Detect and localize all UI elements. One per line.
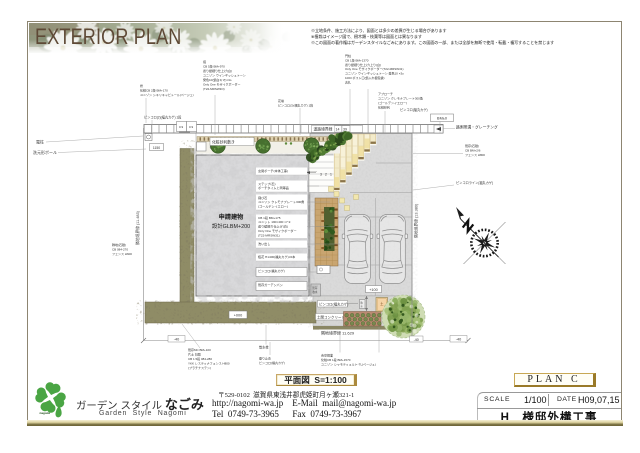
svg-text:申請建物: 申請建物 [219,213,245,221]
svg-text:隣地境界線 (13.380): 隣地境界線 (13.380) [414,203,419,238]
svg-text:(T22-MRSW31): (T22-MRSW31) [258,233,280,237]
svg-text:ピンコロライン(福丸カゲ): ピンコロライン(福丸カゲ) [456,180,493,185]
svg-text:0.9: 0.9 [189,125,194,129]
svg-text:CB 1段 BM+1370: CB 1段 BM+1370 [345,57,369,62]
svg-text:ユニソン クレモナプレート300角: ユニソン クレモナプレート300角 [258,199,304,204]
svg-text:隣地境界線 11.629: 隣地境界線 11.629 [321,330,355,336]
svg-text:(T22-MRSW3O): (T22-MRSW3O) [203,87,225,91]
svg-text:CB BM+2/6: CB BM+2/6 [465,148,481,152]
svg-text:化粧CB 1段 BM+1570: 化粧CB 1段 BM+1570 [321,357,351,362]
svg-text:門柱: 門柱 [345,53,351,58]
svg-text:0.9: 0.9 [179,125,184,129]
svg-text:ユニゾン シキリキャピトール(ベージュ): ユニゾン シキリキャピトール(ベージュ) [140,92,194,97]
svg-text:39: 39 [343,128,347,132]
svg-text:遮り壁細り仕上げ(上り(白): 遮り壁細り仕上げ(上り(白) [345,62,381,67]
svg-text:遮り壁細り仕上げ(白): 遮り壁細り仕上げ(白) [203,68,232,73]
svg-text:化粧CB 2段 BM+170: 化粧CB 2段 BM+170 [140,87,168,92]
svg-text:ユニット 190×400 ×7.9: ユニット 190×400 ×7.9 [258,220,291,224]
svg-text:道路境界線: 道路境界線 [314,127,333,132]
svg-text:ユニゾン ウインギッシュトーン 発色10 ×3o: ユニゾン ウインギッシュトーン 発色10 ×3o [345,71,404,76]
svg-text:堀: 堀 [203,59,206,64]
svg-text:散水栓: 散水栓 [259,345,269,350]
svg-text:散水: 散水 [312,290,318,294]
svg-text:CB 1.5段 084-280: CB 1.5段 084-280 [188,356,212,361]
svg-text:化粧砂利: 化粧砂利 [378,105,390,110]
svg-text:+000: +000 [234,314,243,318]
svg-text:1003 ポスト口(鏡入れ梱包袋): 1003 ポスト口(鏡入れ梱包袋) [345,75,385,80]
svg-text:-40: -40 [456,338,462,342]
svg-text:Only One モザイクボーダー(T22-MRSW31): Only One モザイクボーダー(T22-MRSW31) [345,66,403,71]
svg-text:既存ガーデンパン: 既存ガーデンパン [258,282,283,287]
svg-text:枡: 枡 [140,83,143,88]
svg-text:-40: -40 [414,338,419,342]
svg-text:BM±0: BM±0 [437,117,447,121]
svg-text:3: 3 [320,173,322,177]
svg-text:発色10(鏡白キマ)×3o: 発色10(鏡白キマ)×3o [203,77,232,82]
svg-text:乗り止め: 乗り止め [259,356,271,361]
svg-text:花壇: 花壇 [278,98,284,103]
svg-text:1150: 1150 [153,146,160,150]
svg-text:(ゴールデンイエロー): (ゴールデンイエロー) [378,100,407,105]
svg-text:(ゴールデンイエロー): (ゴールデンイエロー) [258,204,288,209]
svg-text:ピンコロ(福丸カゲ): ピンコロ(福丸カゲ) [319,302,348,307]
svg-text:片土 割取: 片土 割取 [188,352,201,357]
svg-text:ピンコロ(2)(福丸カゲ) 1段: ピンコロ(2)(福丸カゲ) 1段 [144,115,182,120]
svg-text:14: 14 [336,128,340,132]
svg-text:化粧砂利敷き: 化粧砂利敷き [212,140,235,145]
svg-text:青空掘業: 青空掘業 [321,353,333,358]
svg-text:ユニゾン シャモティェルト-TL(ベージュ): ユニゾン シャモティェルト-TL(ベージュ) [321,362,376,367]
svg-text:(プラチナステン): (プラチナステン) [188,365,211,370]
svg-text:飛び石: 飛び石 [258,195,267,200]
svg-text:+100: +100 [369,288,378,292]
svg-text:ピンコロ(福丸カゲ): ピンコロ(福丸カゲ) [400,107,428,112]
svg-text:ステップ(石): ステップ(石) [258,181,276,186]
svg-text:ピンコロ(福丸カゲ): ピンコロ(福丸カゲ) [258,268,285,273]
svg-text:ピンコロ(3)(福丸カゲ) 1段: ピンコロ(3)(福丸カゲ) 1段 [278,103,313,108]
svg-text:YKK レスティナフェンス H800: YKK レスティナフェンス H800 [188,361,230,366]
svg-text:nagomi: nagomi [40,411,51,415]
svg-text:設計GLBM+200: 設計GLBM+200 [212,222,250,230]
svg-text:CB 1段 BM+175: CB 1段 BM+175 [258,215,281,220]
svg-text:アプローチ: アプローチ [378,91,393,96]
svg-text:洗い出し: 洗い出し [258,241,270,246]
svg-text:洗元形ポール: 洗元形ポール [33,149,57,155]
svg-text:電柱: 電柱 [36,139,44,145]
svg-text:既存(石積): 既存(石積) [465,143,479,148]
svg-text:既存: 既存 [312,286,318,290]
svg-text:表札: 表札 [345,79,351,84]
svg-text:玄関ポーチ(本体工事): 玄関ポーチ(本体工事) [258,168,288,173]
svg-text:隣地境界線 (11.483): 隣地境界線 (11.483) [135,210,140,245]
svg-text:CB 084-270: CB 084-270 [112,248,128,252]
svg-text:CB 5段 BM+970: CB 5段 BM+970 [203,64,225,69]
svg-text:ユニゾン ウインギッシュトーン: ユニゾン ウインギッシュトーン [203,73,246,78]
svg-text:フェンス H600: フェンス H600 [112,251,132,256]
svg-text:Only One モザイクボーダー: Only One モザイクボーダー [203,82,240,87]
svg-text:2: 2 [325,173,327,177]
svg-text:隣地(石積): 隣地(石積) [112,242,126,247]
svg-text:土間コンクリート: 土間コンクリート [317,315,345,320]
svg-text:路側帯溝・グレーチング: 路側帯溝・グレーチング [456,125,498,130]
svg-text:ポーチタイムと同等品: ポーチタイムと同等品 [258,185,289,190]
svg-text:Only One モザイクボーダー: Only One モザイクボーダー [258,228,297,233]
svg-text:遮り壁細り仕上げ(白): 遮り壁細り仕上げ(白) [258,224,288,229]
svg-text:フェンス H800: フェンス H800 [465,152,485,157]
svg-text:ユニゾン クレモナプレート300角: ユニゾン クレモナプレート300角 [378,96,423,101]
svg-text:-40: -40 [174,338,180,342]
svg-text:既存MC BM+100: 既存MC BM+100 [188,347,211,352]
svg-text:1: 1 [330,173,332,177]
svg-text:植花 H1400(福丸カゲ)×6本: 植花 H1400(福丸カゲ)×6本 [258,254,295,259]
svg-text:ピンコロ(福丸カゲ): ピンコロ(福丸カゲ) [259,360,285,365]
